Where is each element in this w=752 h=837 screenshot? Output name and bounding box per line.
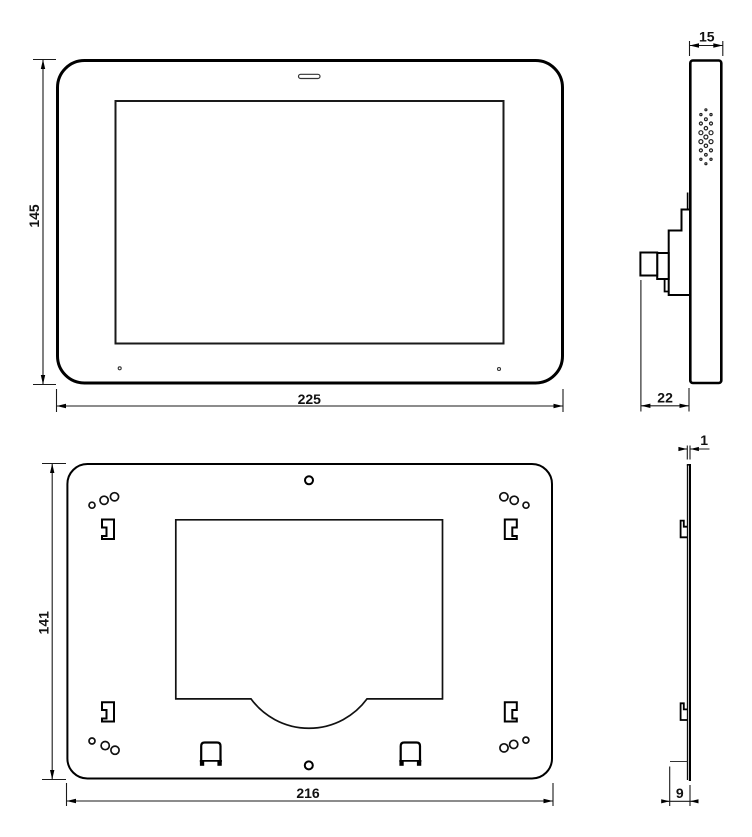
svg-text:15: 15 — [699, 29, 715, 45]
svg-text:216: 216 — [296, 785, 320, 801]
svg-text:9: 9 — [676, 785, 684, 801]
svg-text:145: 145 — [26, 204, 42, 228]
svg-text:225: 225 — [298, 391, 322, 407]
svg-text:1: 1 — [700, 432, 708, 448]
svg-text:22: 22 — [657, 389, 673, 405]
svg-text:141: 141 — [35, 611, 51, 635]
